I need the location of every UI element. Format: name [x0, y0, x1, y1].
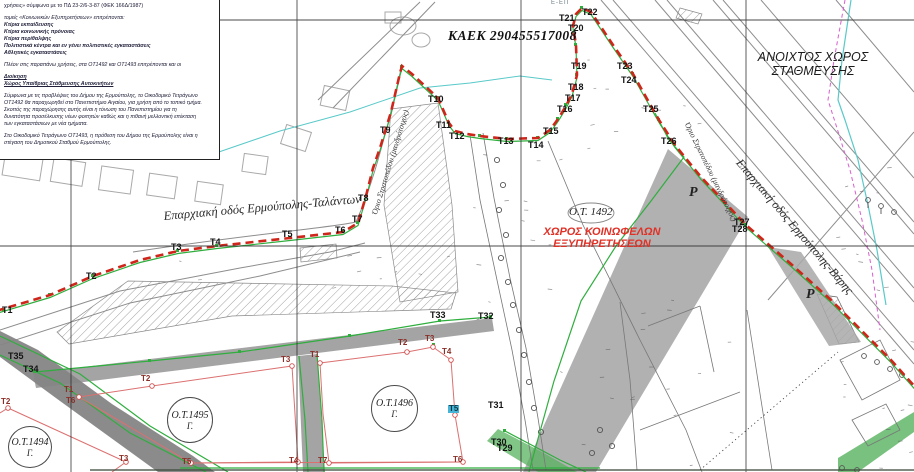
- block-1494-id: Ο.Τ.1494: [11, 437, 48, 448]
- point-label-Τ10: Τ10: [428, 95, 444, 104]
- koinofelon-line2: ΕΞΥΠΗΡΕΤΗΣΕΩΝ: [522, 238, 682, 250]
- point-label-Τ22: Τ22: [582, 8, 598, 17]
- legend-heading-parking: Χώρος Υπαίθριας Στάθμευσης Αυτοκινήτων: [4, 81, 213, 88]
- point-label-Τ3: Τ3: [119, 455, 128, 463]
- point-label-Τ6: Τ6: [335, 226, 346, 235]
- block-circle-1496: Ο.Τ.1496 Γ.: [371, 385, 418, 432]
- legend-text-line: Κτίρια κοινωνικής πρόνοιας: [4, 29, 213, 36]
- block-1495-sub: Γ.: [187, 421, 193, 431]
- point-label-Τ7: Τ7: [318, 457, 327, 465]
- point-label-Τ3: Τ3: [281, 356, 290, 364]
- map-canvas[interactable]: χρήσεις» σύμφωνα με το ΠΔ 23-2/6-3-87 (Φ…: [0, 0, 914, 472]
- block-1496-sub: Γ.: [391, 409, 397, 419]
- point-label-Τ3: Τ3: [171, 243, 182, 252]
- ot1492-label: Ο.Τ. 1492: [569, 206, 613, 218]
- open-parking-label: ΑΝΟΙΧΤΟΣ ΧΩΡΟΣ ΣΤΑΘΜΕΥΣΗΣ: [738, 50, 888, 78]
- point-label-Τ2: Τ2: [1, 398, 10, 406]
- legend-line2: τομείς «Κοινωνικών Εξυπηρετήσεων» επιτρέ…: [4, 15, 213, 22]
- point-label-Τ31: Τ31: [488, 401, 504, 410]
- parking-p2-label: Ρ: [806, 287, 815, 303]
- point-label-Τ14: Τ14: [528, 141, 544, 150]
- open-parking-line1: ΑΝΟΙΧΤΟΣ ΧΩΡΟΣ: [738, 50, 888, 64]
- point-label-Τ24: Τ24: [621, 76, 637, 85]
- point-label-Τ2: Τ2: [86, 272, 97, 281]
- point-label-Τ11: Τ11: [436, 121, 451, 130]
- point-label-Τ1: Τ1: [310, 351, 319, 359]
- legend-box: χρήσεις» σύμφωνα με το ΠΔ 23-2/6-3-87 (Φ…: [0, 0, 220, 160]
- point-label-Τ21: Τ21: [559, 14, 575, 23]
- block-1496-id: Ο.Τ.1496: [376, 398, 413, 409]
- point-label-Τ12: Τ12: [449, 132, 465, 141]
- point-label-Τ26: Τ26: [661, 137, 677, 146]
- point-label-Τ4: Τ4: [210, 238, 221, 247]
- point-label-Τ6: Τ6: [66, 397, 75, 405]
- point-label-Τ23: Τ23: [617, 62, 633, 71]
- block-circle-1495: Ο.Τ.1495 Γ.: [167, 397, 213, 443]
- point-label-Τ19: Τ19: [571, 62, 587, 71]
- point-label-Τ1: Τ1: [2, 306, 13, 315]
- e-ep-label: Ε-ΕΠ: [551, 0, 569, 6]
- legend-text-line: ΟΤ1492 θα παραχωρηθεί στο Πανεπιστήμιο Α…: [4, 100, 213, 107]
- legend-text-line: Σύμφωνα με τις προβλέψεις του Δήμου της …: [4, 93, 213, 100]
- point-label-Τ18: Τ18: [568, 83, 584, 92]
- point-label-Τ13: Τ13: [498, 137, 514, 146]
- point-label-Τ4: Τ4: [289, 457, 298, 465]
- koinofelon-line1: ΧΩΡΟΣ ΚΟΙΝΩΦΕΛΩΝ: [522, 226, 682, 238]
- koinofelon-zone-label: ΧΩΡΟΣ ΚΟΙΝΩΦΕΛΩΝ ΕΞΥΠΗΡΕΤΗΣΕΩΝ: [522, 226, 682, 250]
- legend-text-line: δυνατότητα προσέλκυσης νέων φοιτητών καθ…: [4, 114, 213, 121]
- point-label-Τ3: Τ3: [425, 335, 434, 343]
- legend-text-line: Αθλητικές εγκαταστάσεις: [4, 50, 213, 57]
- legend-text-line: Πολιτιστικά κέντρα και εν γένει πολιτιστ…: [4, 43, 213, 50]
- legend-text-line: στέγαση του Δημοτικού Σταθμού Ερμούπολης…: [4, 140, 213, 147]
- point-label-Τ2: Τ2: [141, 375, 150, 383]
- legend-uses: Κτίρια εκπαίδευσηςΚτίρια κοινωνικής πρόν…: [4, 22, 213, 57]
- point-label-Τ32: Τ32: [478, 312, 494, 321]
- point-label-Τ33: Τ33: [430, 311, 446, 320]
- legend-text-line: Στο Οικοδομικό Τετράγωνο ΟΤ1493, η πρόθε…: [4, 133, 213, 140]
- point-label-Τ5: Τ5: [182, 458, 191, 466]
- point-label-Τ1: Τ1: [64, 386, 73, 394]
- point-label-Τ25: Τ25: [643, 105, 659, 114]
- point-label-Τ5[interactable]: Τ5: [448, 405, 459, 413]
- legend-line1: χρήσεις» σύμφωνα με το ΠΔ 23-2/6-3-87 (Φ…: [4, 3, 213, 10]
- legend-para1: Σύμφωνα με τις προβλέψεις του Δήμου της …: [4, 93, 213, 128]
- point-label-Τ6: Τ6: [453, 456, 462, 464]
- point-label-Τ15: Τ15: [543, 127, 559, 136]
- point-label-Τ35: Τ35: [8, 352, 24, 361]
- legend-text-line: Κτίρια περίθαλψης: [4, 36, 213, 43]
- point-label-Τ17: Τ17: [565, 94, 581, 103]
- point-label-Τ20: Τ20: [568, 24, 584, 33]
- legend-para2: Στο Οικοδομικό Τετράγωνο ΟΤ1493, η πρόθε…: [4, 133, 213, 147]
- point-label-Τ4: Τ4: [442, 348, 451, 356]
- point-label-Τ8: Τ8: [358, 194, 369, 203]
- legend-text-line: των εγκαταστάσεων με νέα τμήματα.: [4, 121, 213, 128]
- point-label-Τ5: Τ5: [282, 230, 293, 239]
- block-circle-1494: Ο.Τ.1494 Γ.: [8, 426, 52, 468]
- point-label-Τ2: Τ2: [398, 339, 407, 347]
- block-1494-sub: Γ.: [27, 448, 33, 458]
- legend-heading-admin: Διοίκηση: [4, 74, 213, 81]
- parking-p1-label: Ρ: [689, 185, 698, 201]
- point-label-Τ16: Τ16: [557, 105, 573, 114]
- kaek-label: ΚΑΕΚ 290455517008: [448, 28, 577, 44]
- block-1495-id: Ο.Τ.1495: [171, 410, 208, 421]
- point-label-Τ34: Τ34: [23, 365, 39, 374]
- point-label-Τ30: Τ30: [491, 438, 507, 447]
- point-label-Τ28: Τ28: [732, 225, 748, 234]
- point-label-Τ7: Τ7: [352, 215, 363, 224]
- legend-text-line: Κτίρια εκπαίδευσης: [4, 22, 213, 29]
- legend-note: Πλέον στις παραπάνω χρήσεις, στα ΟΤ1492 …: [4, 62, 213, 69]
- open-parking-line2: ΣΤΑΘΜΕΥΣΗΣ: [738, 64, 888, 78]
- point-label-Τ9: Τ9: [380, 126, 391, 135]
- legend-text-line: Σκοπός της παραχώρησης αυτής είναι η τόν…: [4, 107, 213, 114]
